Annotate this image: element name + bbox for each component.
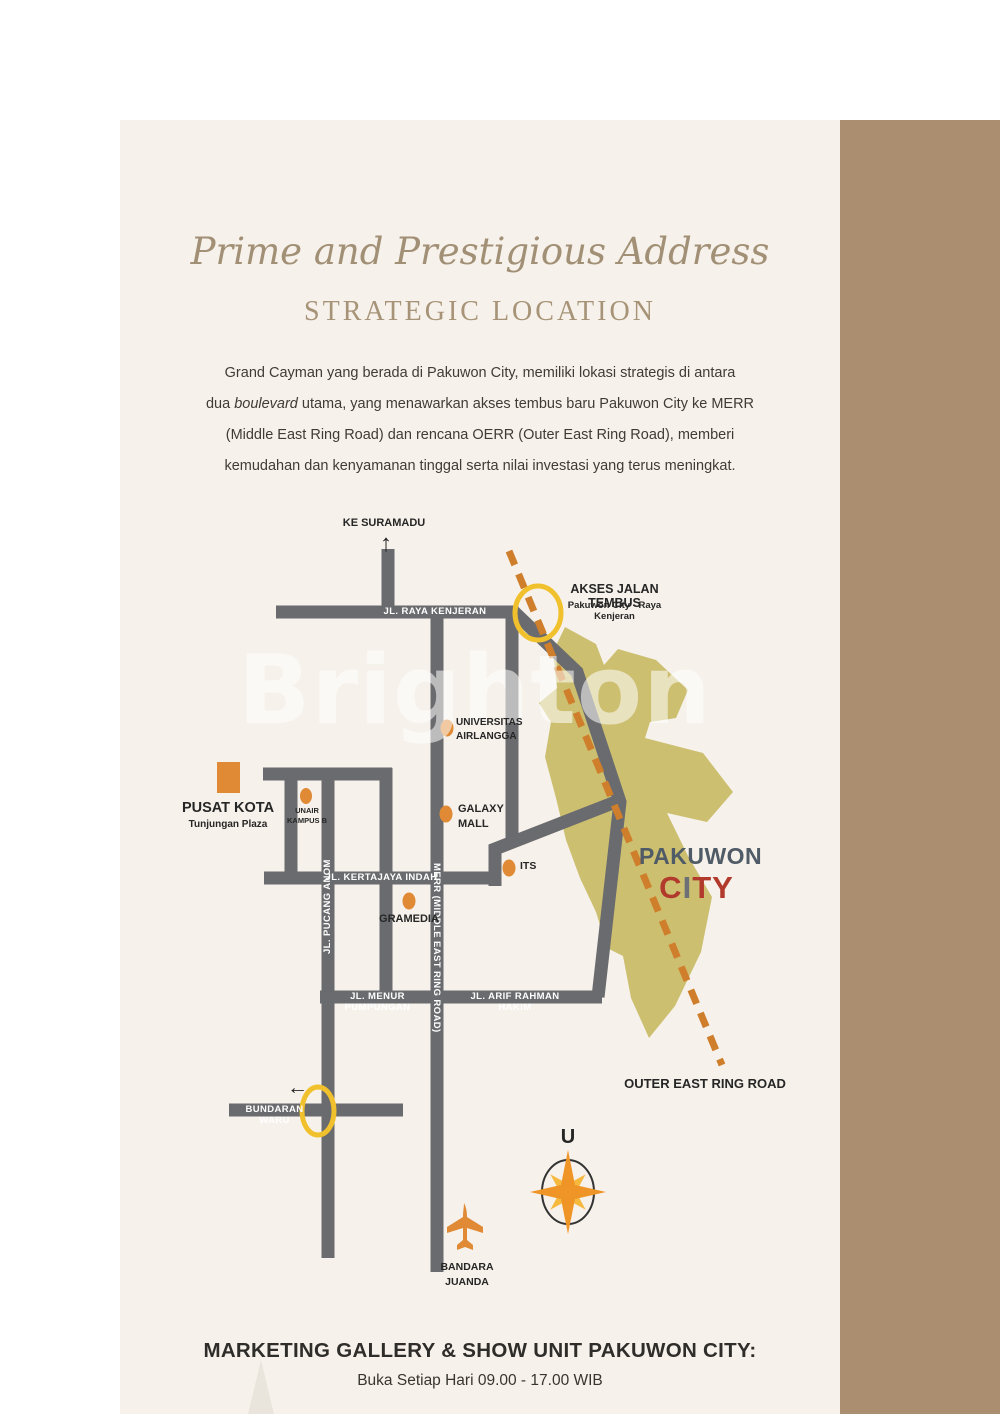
road-label-merr: MERR (MIDDLE EAST RING ROAD) (431, 833, 442, 1063)
gramedia-marker (403, 893, 416, 910)
page-title: STRATEGIC LOCATION (120, 296, 840, 328)
galaxy-mall-marker (440, 806, 453, 823)
outer-east-ring-road-label: OUTER EAST RING ROAD (620, 1076, 790, 1091)
its-label: ITS (520, 860, 536, 872)
gramedia-label: GRAMEDIA (369, 913, 449, 925)
road-label-pucang-anom: JL. PUCANG ANOM (322, 848, 333, 966)
intro-line-4: kemudahan dan kenyamanan tinggal serta n… (120, 451, 840, 482)
unair-kampus-marker (300, 788, 312, 804)
road-label-raya-kenjeran: JL. RAYA KENJERAN (380, 606, 490, 617)
bandara-juanda-label: BANDARA JUANDA (427, 1260, 507, 1290)
airplane-icon (447, 1203, 483, 1250)
intro-line-1: Grand Cayman yang berada di Pakuwon City… (120, 358, 840, 389)
pakuwon-city-label: CITY (639, 870, 754, 906)
intro-paragraph: Grand Cayman yang berada di Pakuwon City… (120, 358, 840, 482)
toll-direction-arrow-icon: ← (287, 1076, 308, 1100)
galaxy-mall-label: GALAXY MALL (458, 803, 504, 830)
opening-hours: Buka Setiap Hari 09.00 - 17.00 WIB (120, 1372, 840, 1390)
script-title: Prime and Prestigious Address (120, 230, 840, 273)
intro-line-3: (Middle East Ring Road) dan rencana OERR… (120, 420, 840, 451)
its-marker (503, 860, 516, 877)
north-arrow-icon: ↑ (380, 530, 392, 558)
road-label-arif-rahman: JL. ARIF RAHMAN HAKIM (455, 991, 575, 1013)
ke-suramadu-label: KE SURAMADU (334, 517, 434, 529)
universitas-airlangga-label: UNIVERSITAS AIRLANGGA (456, 717, 523, 742)
marketing-gallery-title: MARKETING GALLERY & SHOW UNIT PAKUWON CI… (120, 1339, 840, 1363)
pusat-kota-label: PUSAT KOTA (168, 800, 288, 816)
akses-jalan-tembus-sublabel: Pakuwon City - Raya Kenjeran (552, 600, 677, 622)
road-label-kertajaya: JL. KERTAJAYA INDAH (324, 872, 439, 883)
compass-north-label: U (540, 1126, 596, 1149)
sidebar-color-band (840, 120, 1000, 1414)
intro-line-2: dua boulevard utama, yang menawarkan aks… (120, 389, 840, 420)
road-label-bundaran-waru: BUNDARAN WARU (232, 1104, 317, 1126)
compass-icon (530, 1150, 606, 1234)
pusat-kota-sublabel: Tunjungan Plaza (168, 819, 288, 830)
road-label-menur: JL. MENUR PUMPUNGAN (320, 991, 435, 1013)
pusat-kota-marker (217, 762, 240, 793)
pakuwon-area-label: PAKUWON (639, 843, 754, 870)
